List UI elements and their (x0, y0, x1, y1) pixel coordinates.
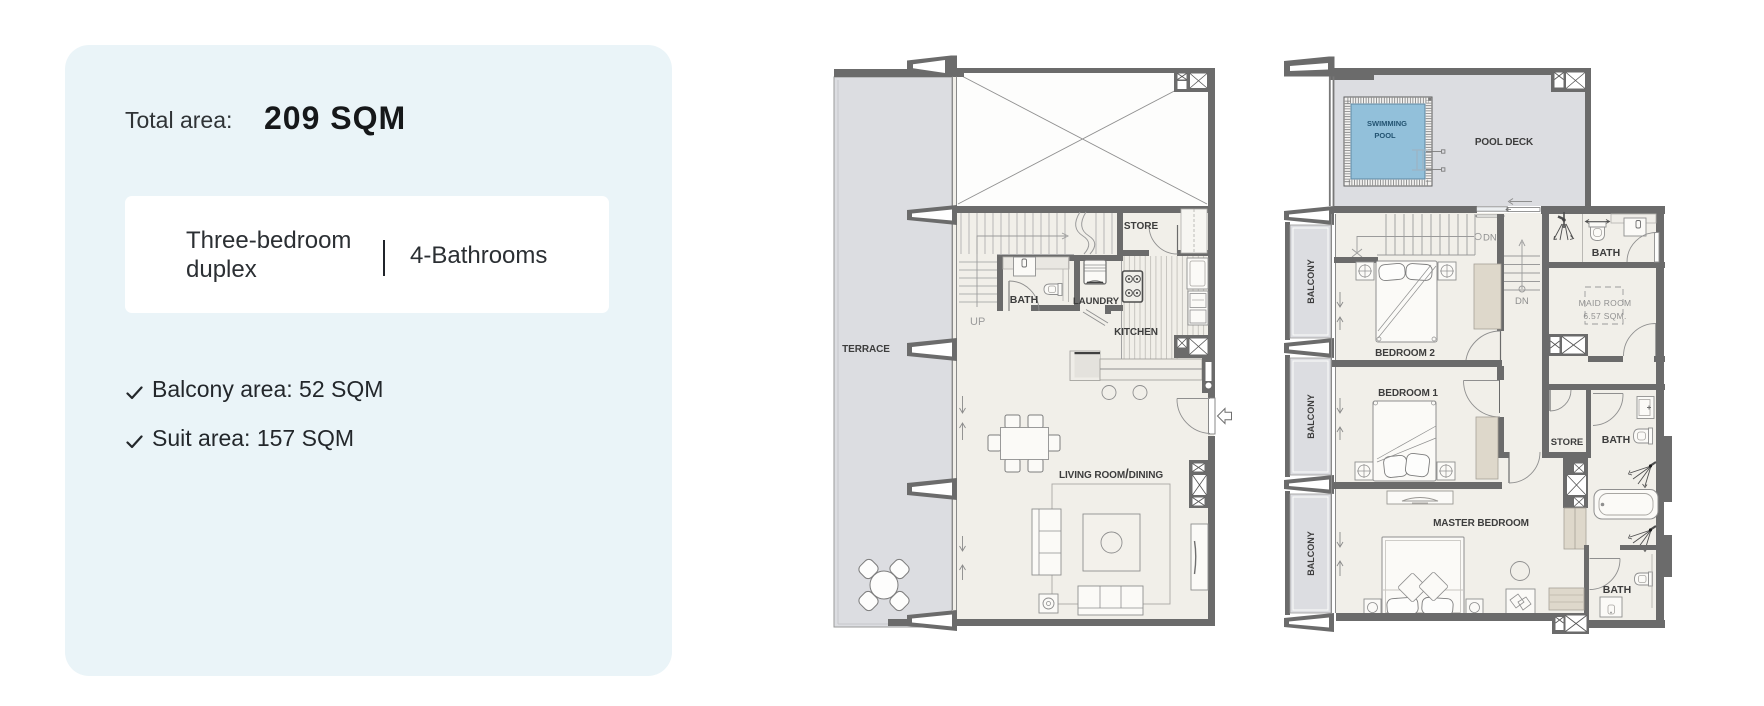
svg-text:POOL: POOL (1374, 131, 1396, 140)
svg-text:DN: DN (1483, 233, 1497, 244)
svg-text:6.57 SQM.: 6.57 SQM. (1583, 311, 1626, 321)
svg-text:BALCONY: BALCONY (1306, 394, 1316, 439)
svg-text:BATH: BATH (1010, 294, 1038, 306)
svg-text:STORE: STORE (1551, 437, 1584, 448)
svg-text:BALCONY: BALCONY (1306, 259, 1316, 304)
svg-text:UP: UP (970, 316, 985, 328)
svg-text:STORE: STORE (1124, 221, 1159, 232)
svg-text:BALCONY: BALCONY (1306, 531, 1316, 576)
svg-text:KITCHEN: KITCHEN (1114, 327, 1158, 338)
svg-text:BATH: BATH (1602, 434, 1630, 446)
svg-text:DN: DN (1515, 296, 1529, 307)
svg-text:BEDROOM 1: BEDROOM 1 (1378, 388, 1438, 399)
svg-text:MASTER BEDROOM: MASTER BEDROOM (1433, 518, 1529, 529)
svg-text:POOL DECK: POOL DECK (1475, 137, 1534, 148)
svg-text:BEDROOM 2: BEDROOM 2 (1375, 348, 1435, 359)
svg-text:TERRACE: TERRACE (842, 344, 890, 355)
svg-text:MAID ROOM: MAID ROOM (1579, 298, 1632, 308)
svg-text:BATH: BATH (1592, 247, 1620, 259)
svg-text:SWIMMING: SWIMMING (1367, 119, 1407, 128)
svg-text:LAUNDRY: LAUNDRY (1073, 296, 1120, 307)
svg-text:BATH: BATH (1603, 584, 1631, 596)
